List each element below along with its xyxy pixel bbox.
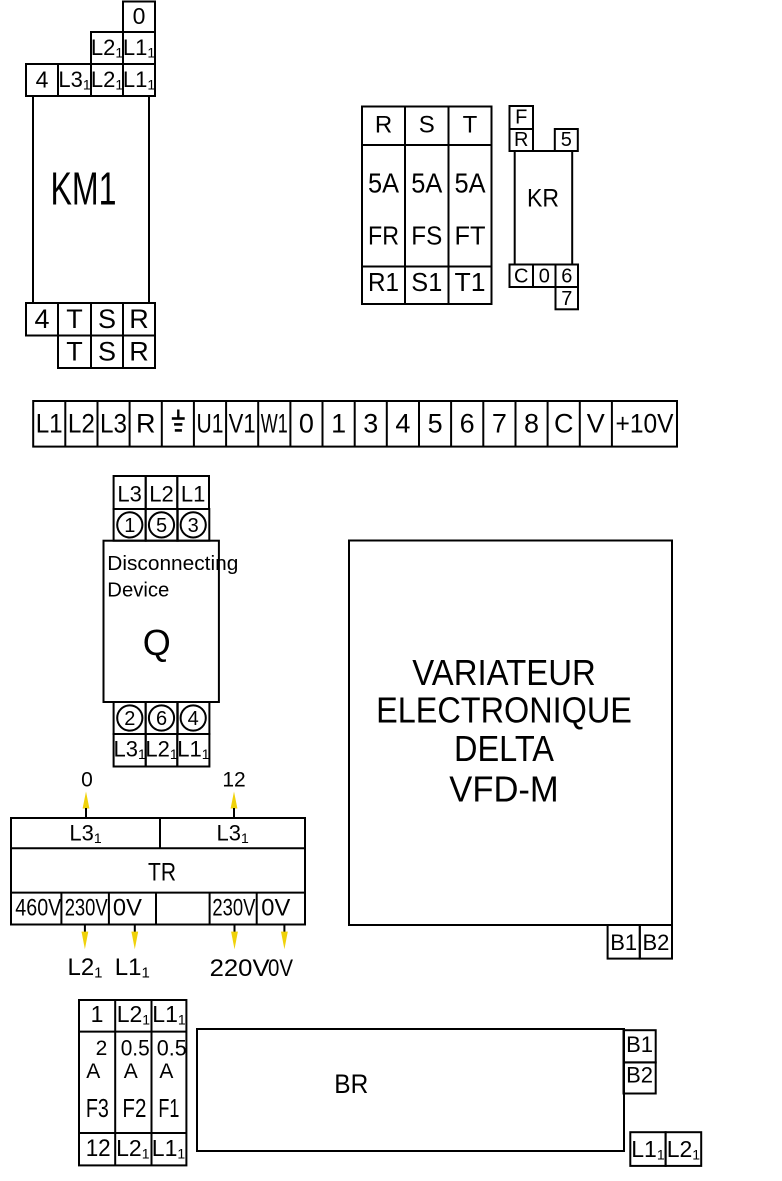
svg-text:Q: Q bbox=[143, 622, 171, 663]
svg-text:R: R bbox=[129, 304, 149, 334]
svg-text:T1: T1 bbox=[455, 267, 486, 297]
svg-text:L2: L2 bbox=[68, 409, 95, 439]
svg-text:KR: KR bbox=[527, 185, 559, 213]
svg-text:0: 0 bbox=[133, 3, 146, 29]
svg-text:W1: W1 bbox=[261, 409, 288, 439]
svg-text:R: R bbox=[375, 112, 392, 139]
svg-text:12: 12 bbox=[86, 1135, 111, 1162]
svg-text:0.5: 0.5 bbox=[121, 1036, 150, 1061]
svg-text:0V: 0V bbox=[261, 895, 290, 922]
svg-text:1: 1 bbox=[331, 409, 346, 439]
svg-text:3: 3 bbox=[363, 409, 378, 439]
svg-text:A: A bbox=[124, 1060, 138, 1083]
svg-text:B2: B2 bbox=[626, 1063, 653, 1088]
svg-text:B2: B2 bbox=[642, 930, 669, 955]
svg-text:5A: 5A bbox=[455, 168, 486, 199]
svg-text:L2: L2 bbox=[149, 482, 173, 507]
svg-text:0V: 0V bbox=[268, 955, 293, 982]
svg-text:220V: 220V bbox=[210, 955, 270, 982]
svg-text:5A: 5A bbox=[411, 168, 442, 199]
svg-text:6: 6 bbox=[460, 409, 475, 439]
svg-text:0.5: 0.5 bbox=[157, 1036, 187, 1061]
svg-text:4: 4 bbox=[36, 66, 49, 92]
svg-text:T: T bbox=[463, 112, 478, 139]
svg-text:2: 2 bbox=[124, 708, 135, 730]
svg-text:R: R bbox=[514, 129, 528, 151]
svg-text:KM1: KM1 bbox=[51, 163, 117, 215]
svg-text:L3: L3 bbox=[117, 482, 141, 507]
svg-text:VFD-M: VFD-M bbox=[449, 768, 558, 809]
svg-text:5: 5 bbox=[156, 515, 167, 537]
svg-text:TR: TR bbox=[148, 859, 176, 887]
svg-text:4: 4 bbox=[188, 708, 199, 730]
svg-text:6: 6 bbox=[561, 266, 572, 288]
svg-text:ELECTRONIQUE: ELECTRONIQUE bbox=[376, 689, 632, 730]
svg-text:V: V bbox=[587, 409, 605, 439]
svg-text:R: R bbox=[129, 337, 149, 367]
svg-text:5: 5 bbox=[561, 129, 572, 151]
svg-text:Disconnecting: Disconnecting bbox=[107, 553, 238, 575]
svg-text:S: S bbox=[98, 304, 116, 334]
svg-text:0: 0 bbox=[539, 266, 550, 288]
svg-text:460V: 460V bbox=[15, 895, 61, 922]
svg-text:Device: Device bbox=[107, 580, 169, 602]
svg-text:230V: 230V bbox=[212, 895, 255, 922]
svg-text:230V: 230V bbox=[65, 895, 108, 922]
svg-text:VARIATEUR: VARIATEUR bbox=[412, 652, 596, 693]
svg-text:5A: 5A bbox=[368, 168, 399, 199]
svg-text:S: S bbox=[98, 337, 116, 367]
svg-text:+10V: +10V bbox=[616, 409, 674, 439]
svg-text:V1: V1 bbox=[229, 409, 256, 439]
svg-text:U1: U1 bbox=[197, 409, 224, 439]
svg-text:DELTA: DELTA bbox=[454, 728, 554, 769]
svg-text:7: 7 bbox=[492, 409, 507, 439]
svg-text:1: 1 bbox=[91, 1001, 104, 1027]
svg-text:12: 12 bbox=[222, 769, 245, 792]
svg-text:C: C bbox=[554, 409, 574, 439]
svg-text:B1: B1 bbox=[610, 930, 637, 955]
svg-text:4: 4 bbox=[395, 409, 410, 439]
svg-text:R1: R1 bbox=[368, 267, 399, 297]
svg-text:F1: F1 bbox=[158, 1093, 179, 1123]
svg-text:S1: S1 bbox=[411, 267, 442, 297]
svg-text:T: T bbox=[66, 304, 83, 334]
svg-text:L1: L1 bbox=[36, 409, 63, 439]
svg-text:3: 3 bbox=[188, 515, 199, 537]
svg-text:F2: F2 bbox=[122, 1093, 146, 1123]
svg-text:8: 8 bbox=[524, 409, 539, 439]
svg-text:L3: L3 bbox=[100, 409, 127, 439]
svg-text:5: 5 bbox=[428, 409, 443, 439]
svg-text:A: A bbox=[159, 1060, 173, 1083]
svg-text:7: 7 bbox=[561, 288, 572, 310]
svg-text:T: T bbox=[66, 337, 83, 367]
svg-text:6: 6 bbox=[156, 708, 167, 730]
svg-text:0: 0 bbox=[299, 409, 314, 439]
svg-text:B1: B1 bbox=[626, 1032, 653, 1057]
svg-text:BR: BR bbox=[334, 1069, 368, 1099]
svg-text:4: 4 bbox=[34, 304, 49, 334]
svg-text:FS: FS bbox=[411, 221, 442, 251]
svg-text:F3: F3 bbox=[86, 1093, 109, 1123]
svg-text:2: 2 bbox=[96, 1037, 108, 1060]
svg-text:0: 0 bbox=[81, 769, 93, 792]
svg-text:FT: FT bbox=[455, 221, 486, 251]
svg-text:R: R bbox=[136, 409, 156, 439]
svg-text:1: 1 bbox=[124, 515, 135, 537]
svg-text:L1: L1 bbox=[181, 482, 205, 507]
svg-text:F: F bbox=[515, 107, 527, 129]
svg-text:FR: FR bbox=[368, 221, 399, 251]
svg-text:S: S bbox=[419, 112, 435, 139]
svg-text:C: C bbox=[514, 266, 528, 288]
svg-text:A: A bbox=[86, 1060, 100, 1083]
svg-text:0V: 0V bbox=[113, 895, 142, 922]
